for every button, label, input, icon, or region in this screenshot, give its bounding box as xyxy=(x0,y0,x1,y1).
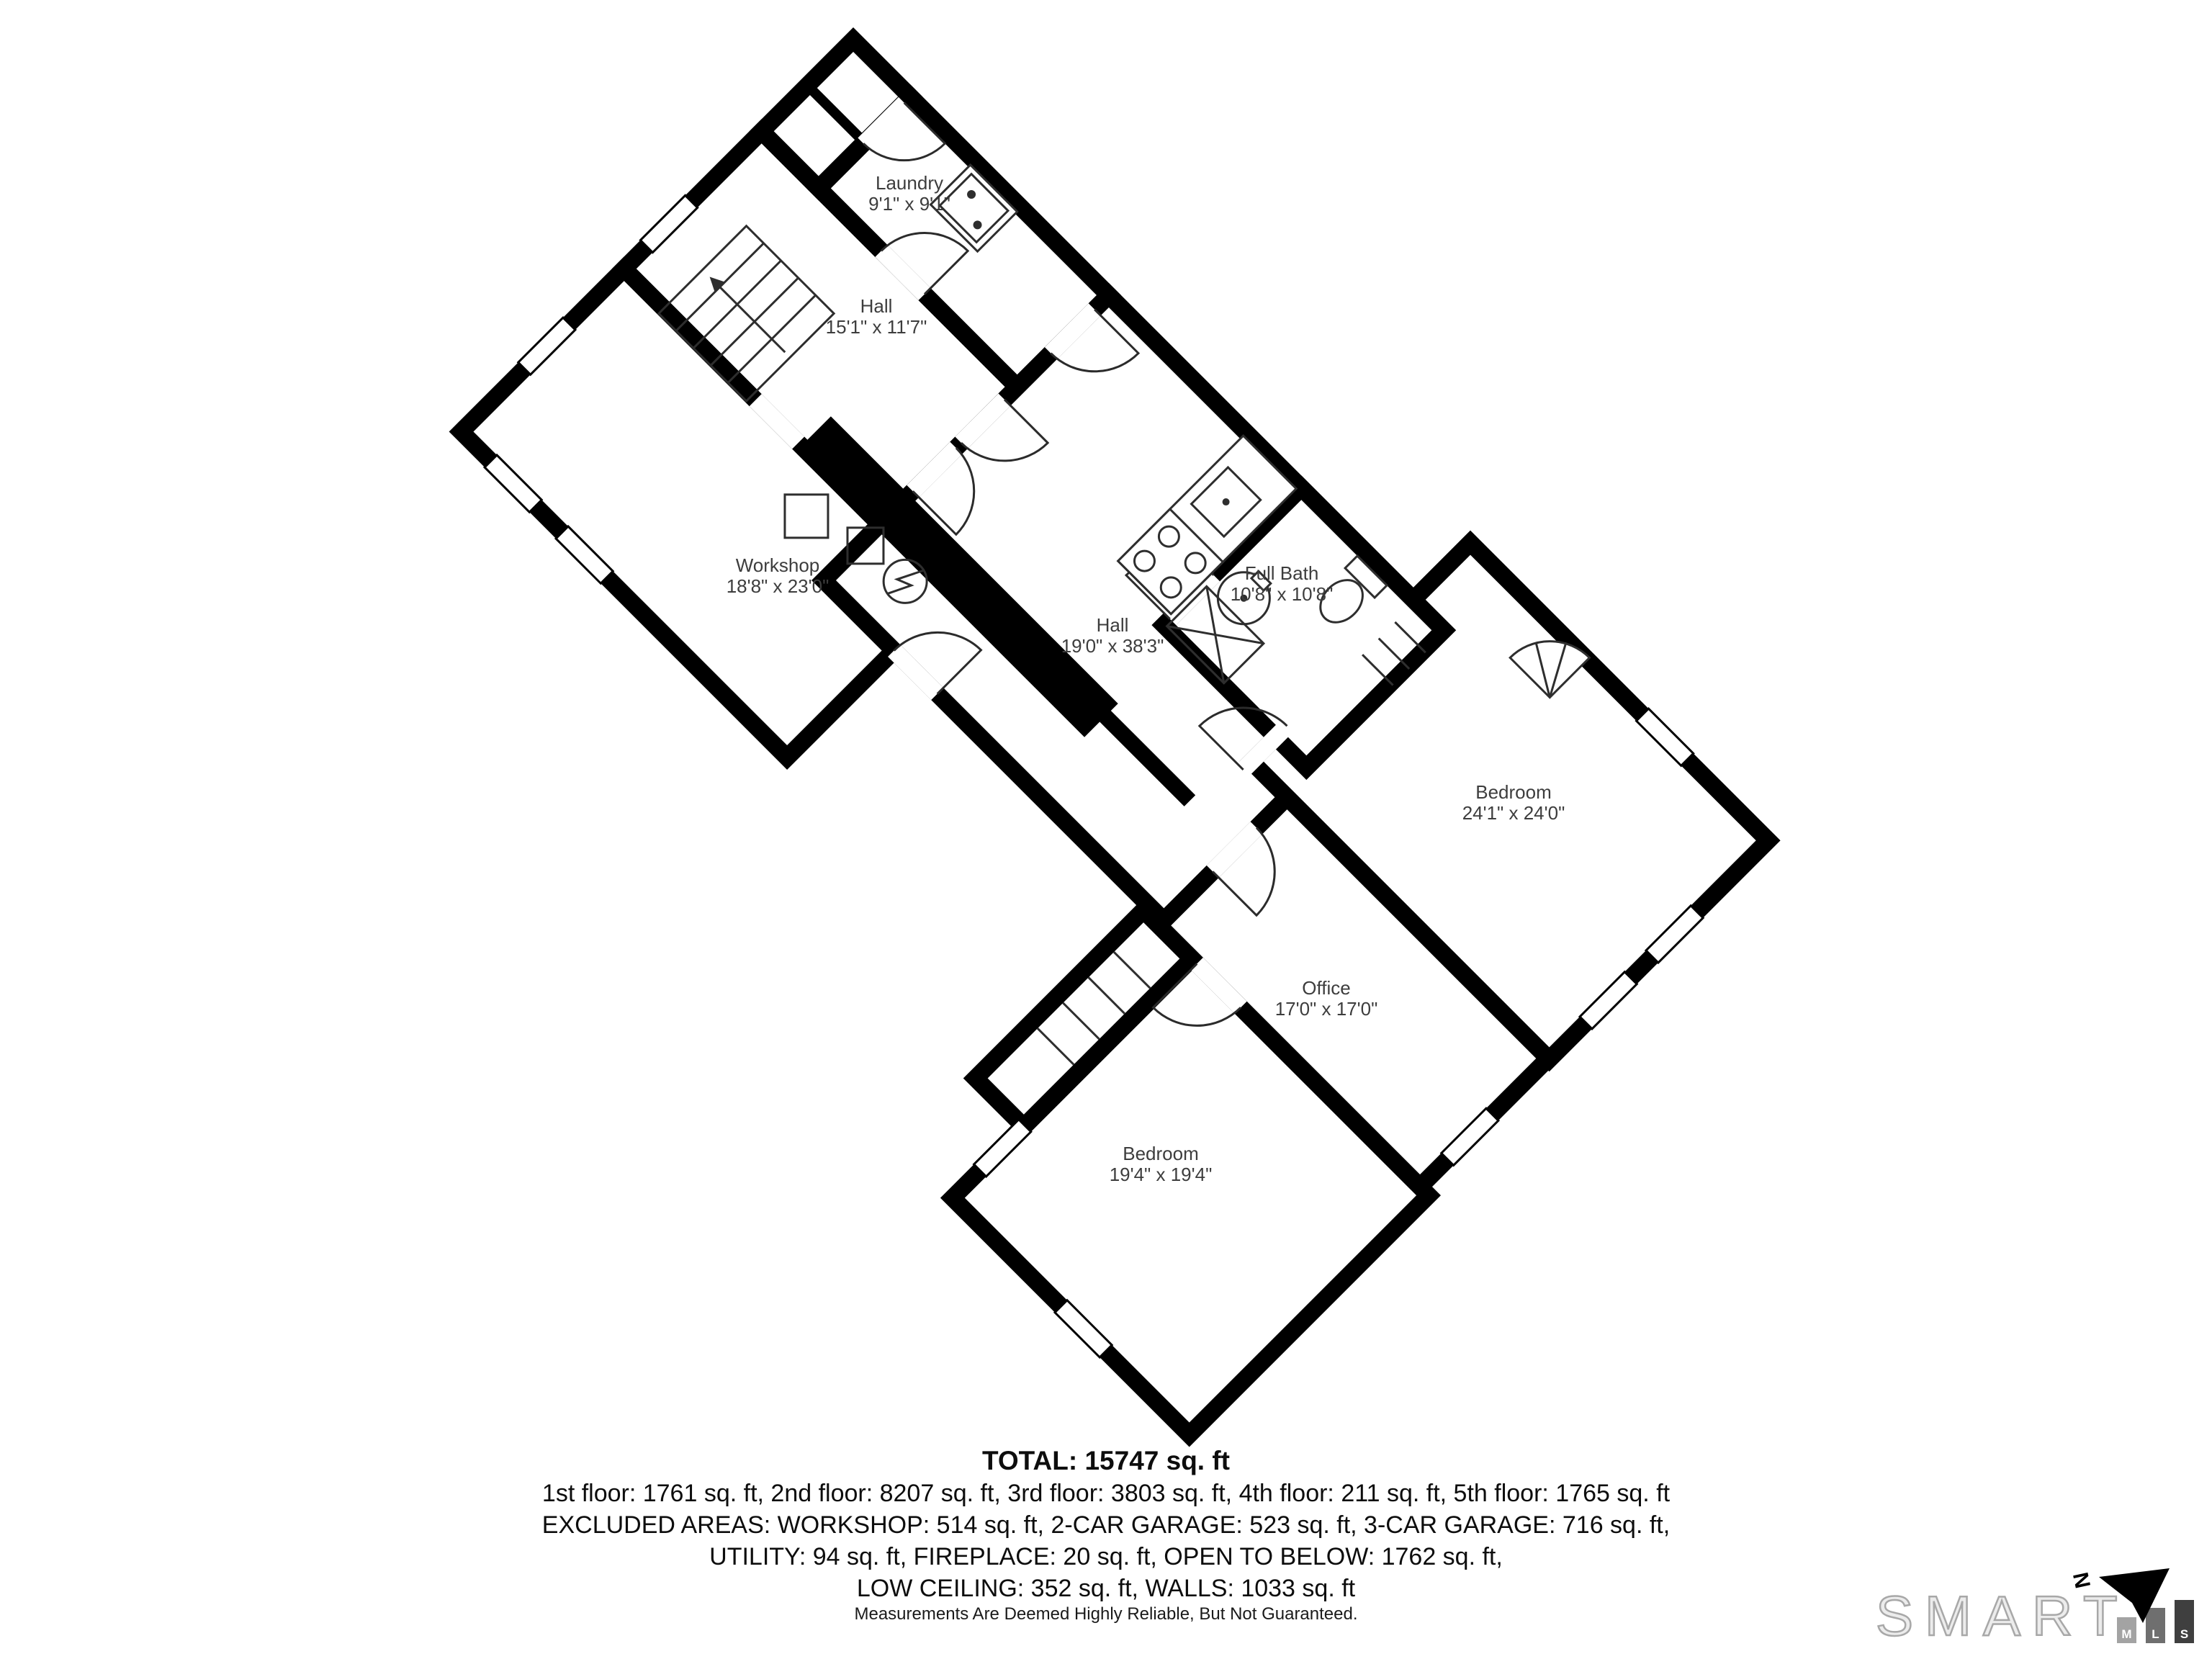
room-label-bedroom-right: Bedroom 24'1" x 24'0" xyxy=(1384,782,1643,824)
room-dimensions: 17'0" x 17'0" xyxy=(1197,999,1456,1020)
room-name: Workshop xyxy=(648,555,907,576)
room-name: Full Bath xyxy=(1152,563,1411,584)
room-dimensions: 15'1" x 11'7" xyxy=(747,317,1006,338)
total-area-text: TOTAL: 15747 sq. ft xyxy=(0,1444,2212,1478)
room-label-full-bath: Full Bath 10'8" x 10'8" xyxy=(1152,563,1411,605)
excluded-areas-text-1: EXCLUDED AREAS: WORKSHOP: 514 sq. ft, 2-… xyxy=(0,1509,2212,1541)
floor-plan-drawing xyxy=(0,0,2212,1659)
room-dimensions: 19'0" x 38'3" xyxy=(983,636,1242,657)
room-dimensions: 18'8" x 23'0" xyxy=(648,576,907,597)
room-dimensions: 10'8" x 10'8" xyxy=(1152,584,1411,605)
room-dimensions: 24'1" x 24'0" xyxy=(1384,803,1643,824)
floor-areas-text: 1st floor: 1761 sq. ft, 2nd floor: 8207 … xyxy=(0,1478,2212,1509)
smart-mls-logo: SMART M L S N xyxy=(1869,1555,2212,1659)
room-label-hall-upper: Hall 15'1" x 11'7" xyxy=(747,296,1006,338)
room-dimensions: 9'1" x 9'1" xyxy=(780,194,1039,215)
north-arrow: N xyxy=(2069,1561,2206,1633)
room-name: Hall xyxy=(983,615,1242,636)
room-name: Bedroom xyxy=(1031,1143,1290,1164)
room-label-workshop: Workshop 18'8" x 23'0" xyxy=(648,555,907,597)
room-name: Hall xyxy=(747,296,1006,317)
room-label-bedroom-lower: Bedroom 19'4" x 19'4" xyxy=(1031,1143,1290,1185)
room-label-laundry: Laundry 9'1" x 9'1" xyxy=(780,173,1039,215)
room-dimensions: 19'4" x 19'4" xyxy=(1031,1164,1290,1185)
room-label-office: Office 17'0" x 17'0" xyxy=(1197,978,1456,1020)
room-walls xyxy=(324,0,1776,1434)
room-name: Office xyxy=(1197,978,1456,999)
room-name: Laundry xyxy=(780,173,1039,194)
room-label-hall-long: Hall 19'0" x 38'3" xyxy=(983,615,1242,657)
room-name: Bedroom xyxy=(1384,782,1643,803)
